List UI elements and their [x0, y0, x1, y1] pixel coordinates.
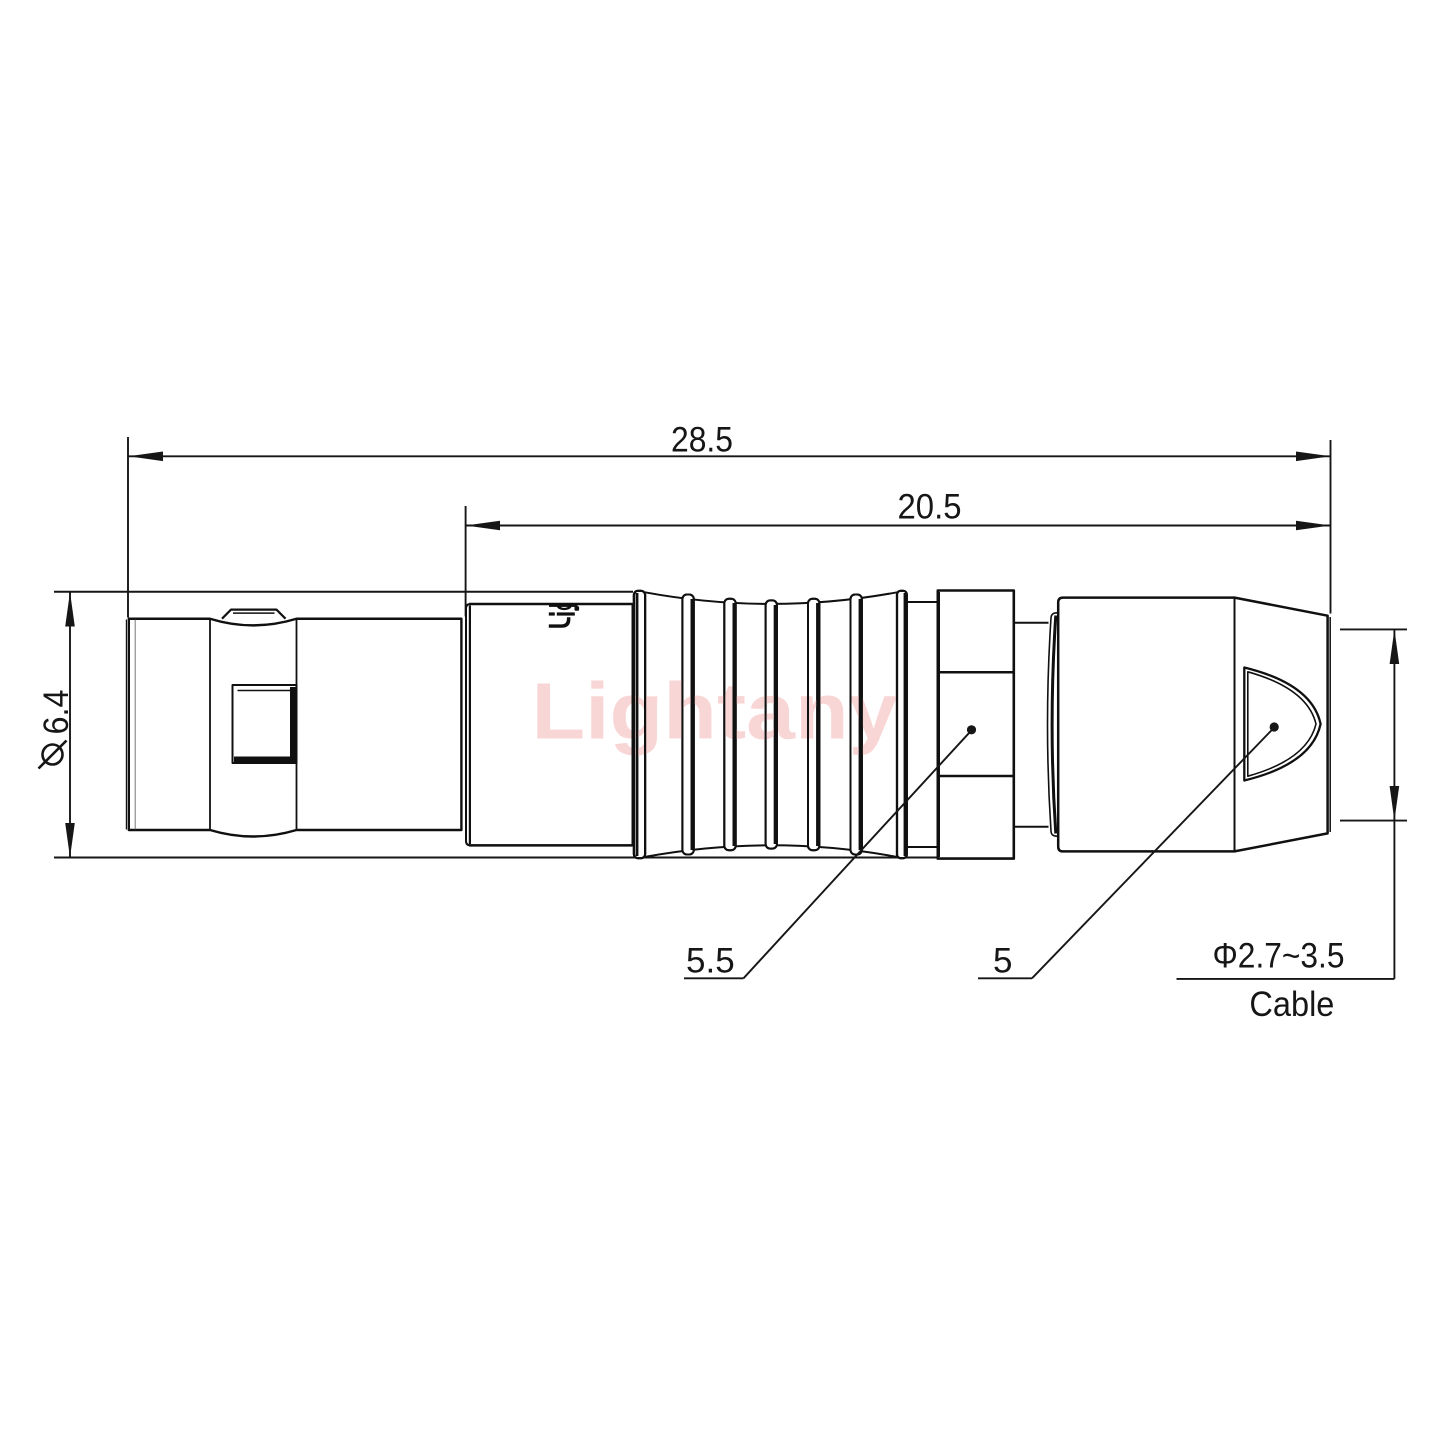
svg-text:Cable: Cable — [1249, 985, 1334, 1024]
svg-text:20.5: 20.5 — [898, 488, 962, 527]
svg-text:Φ2.7~3.5: Φ2.7~3.5 — [1213, 937, 1345, 976]
svg-text:6.4: 6.4 — [37, 690, 76, 735]
svg-text:28.5: 28.5 — [671, 420, 733, 459]
svg-text:5: 5 — [993, 942, 1012, 981]
svg-text:Lightany: Lightany — [532, 667, 899, 756]
svg-text:5.5: 5.5 — [686, 942, 735, 981]
